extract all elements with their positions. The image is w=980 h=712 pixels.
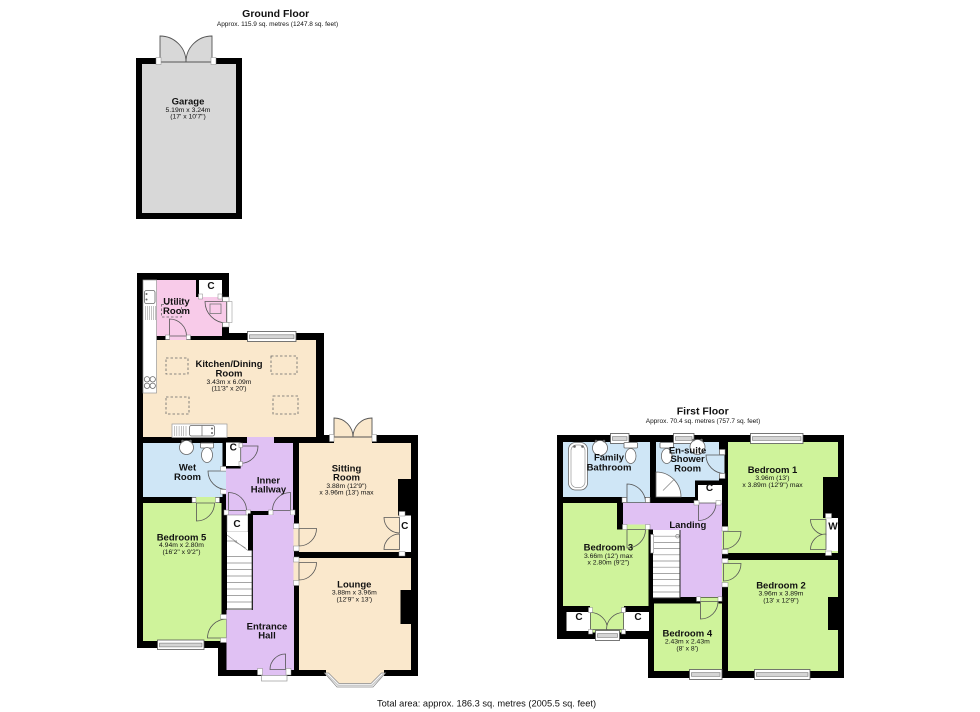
svg-text:C: C <box>401 521 408 532</box>
svg-text:Total area: approx. 186.3 sq.: Total area: approx. 186.3 sq. metres (20… <box>377 699 596 709</box>
svg-text:Room: Room <box>163 306 190 317</box>
svg-text:Room: Room <box>174 472 201 483</box>
svg-text:(13' x 12'9"): (13' x 12'9") <box>763 597 799 604</box>
svg-text:C: C <box>575 612 582 623</box>
svg-text:Hall: Hall <box>258 630 275 641</box>
svg-text:Ground Floor: Ground Floor <box>242 8 309 20</box>
svg-text:C: C <box>233 519 240 530</box>
svg-text:Approx. 70.4 sq. metres (757.7: Approx. 70.4 sq. metres (757.7 sq. feet) <box>646 418 761 425</box>
svg-text:C: C <box>706 483 713 494</box>
svg-text:C: C <box>230 443 237 454</box>
svg-text:Room: Room <box>333 472 360 483</box>
svg-text:x 3.96m (13') max: x 3.96m (13') max <box>319 490 374 497</box>
svg-text:Hallway: Hallway <box>251 484 287 495</box>
svg-text:Bathroom: Bathroom <box>587 463 632 474</box>
svg-text:First Floor: First Floor <box>677 405 729 417</box>
svg-text:x 2.80m (9'2"): x 2.80m (9'2") <box>587 560 629 567</box>
svg-text:(11'3" x 20'): (11'3" x 20') <box>211 385 246 392</box>
svg-text:(16'2" x 9'2"): (16'2" x 9'2") <box>162 549 200 556</box>
svg-text:(17' x 10'7"): (17' x 10'7") <box>170 114 206 121</box>
svg-text:W: W <box>828 522 838 533</box>
svg-text:x 3.89m (12'9") max: x 3.89m (12'9") max <box>742 482 803 489</box>
svg-text:Approx. 115.9 sq. metres (1247: Approx. 115.9 sq. metres (1247.8 sq. fee… <box>217 21 338 28</box>
svg-text:C: C <box>207 281 214 292</box>
svg-text:Room: Room <box>674 464 701 475</box>
svg-text:C: C <box>634 612 641 623</box>
svg-text:(8' x 8'): (8' x 8') <box>676 645 698 652</box>
svg-text:Landing: Landing <box>669 520 706 531</box>
svg-text:Garage: Garage <box>172 97 205 108</box>
svg-text:(12'9" x 13'): (12'9" x 13') <box>336 596 372 603</box>
